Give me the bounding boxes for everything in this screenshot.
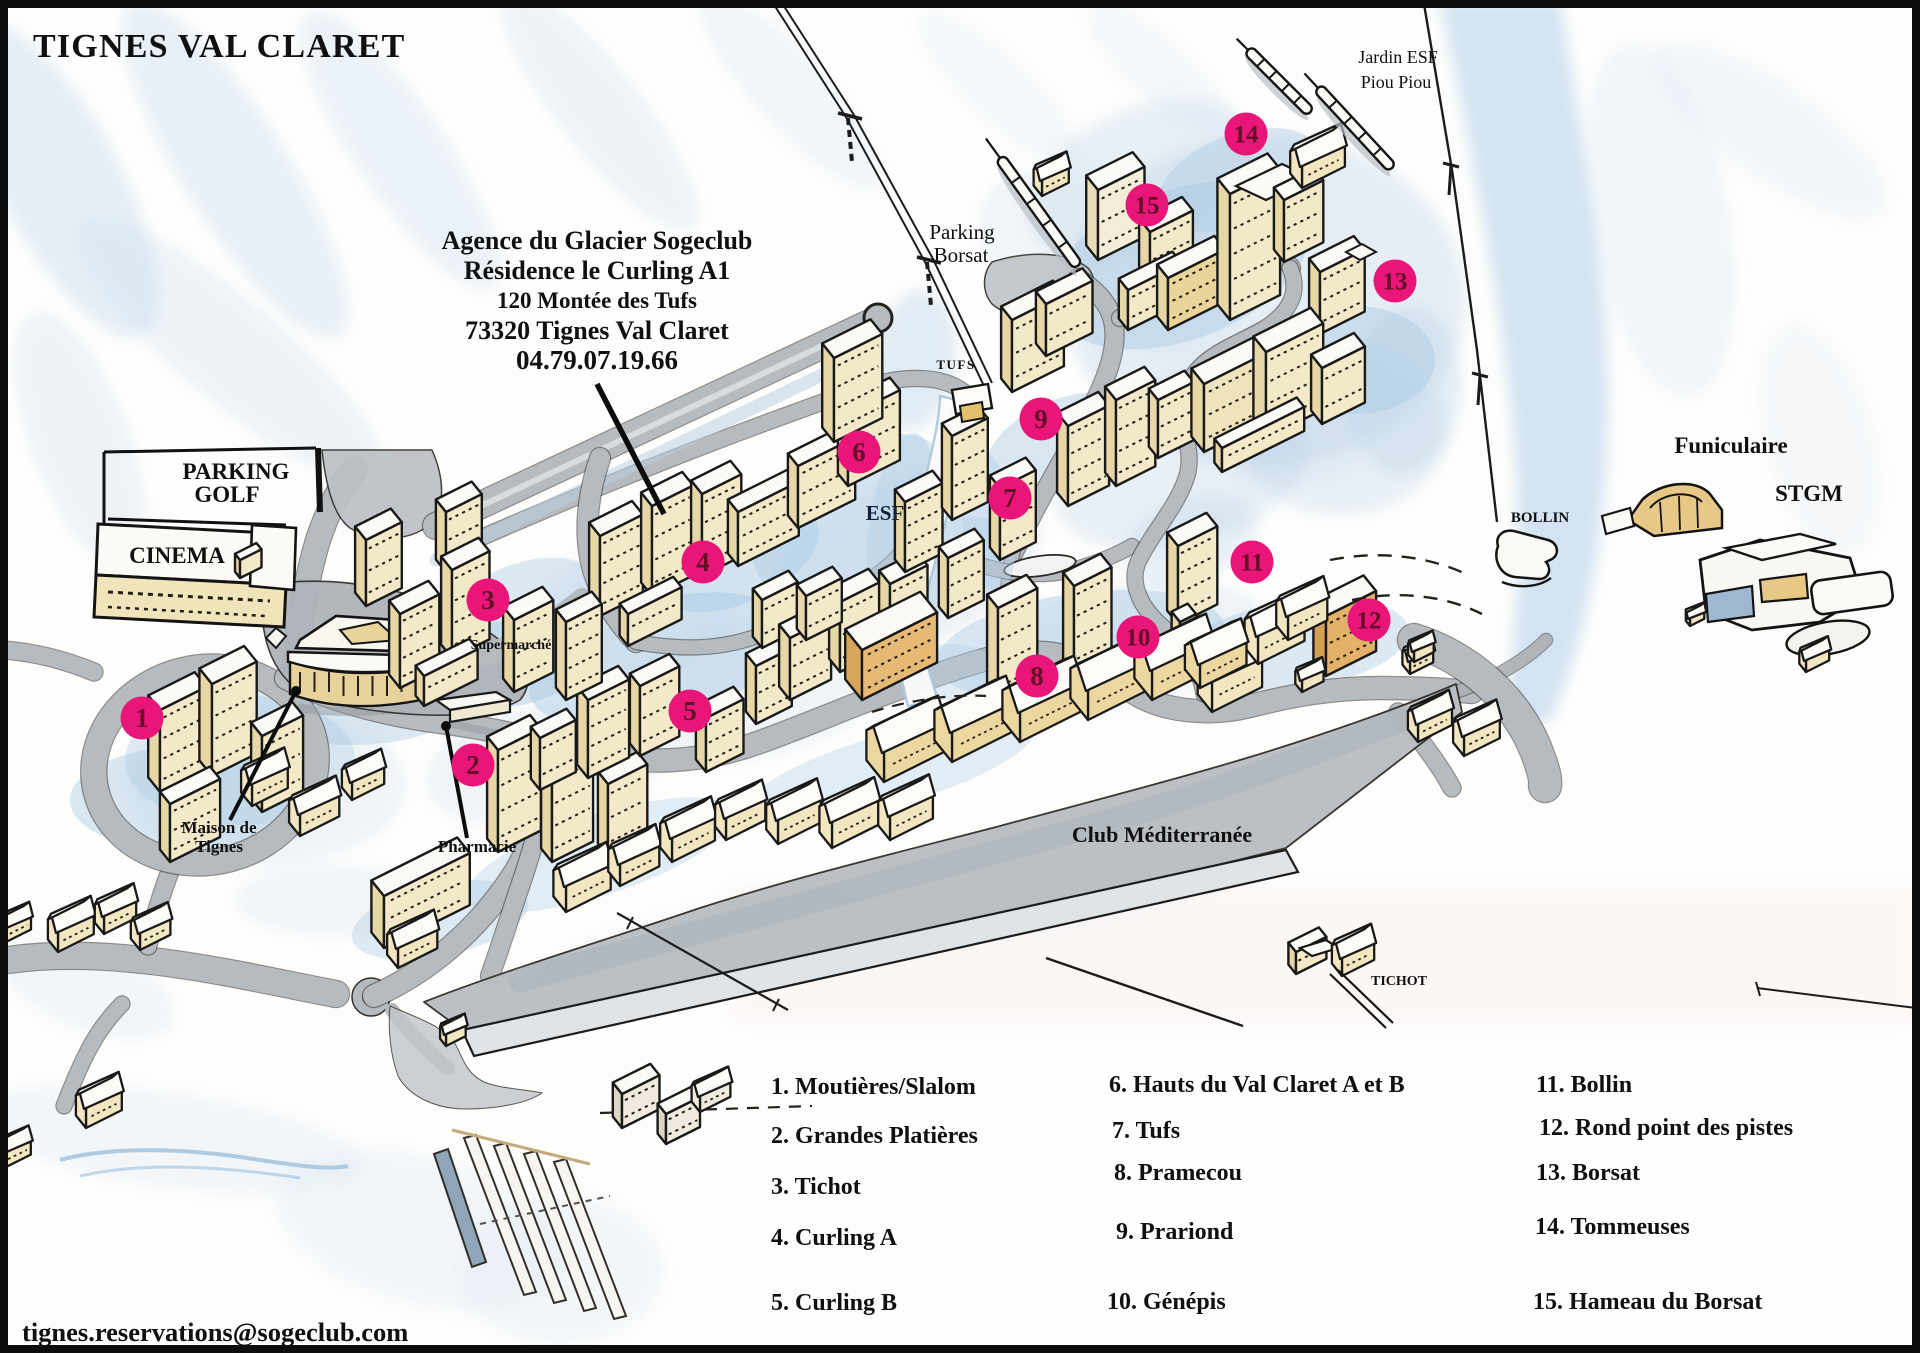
svg-text:Maison de: Maison de [181,818,257,837]
svg-text:CINEMA: CINEMA [129,543,225,568]
svg-text:13. Borsat: 13. Borsat [1536,1160,1640,1186]
svg-text:Parking: Parking [929,220,995,244]
svg-text:STGM: STGM [1775,481,1843,506]
svg-text:73320 Tignes Val Claret: 73320 Tignes Val Claret [465,316,729,345]
svg-text:Supermarché: Supermarché [471,638,552,653]
svg-text:Funiculaire: Funiculaire [1674,433,1787,458]
svg-text:7: 7 [1003,483,1017,513]
svg-text:1. Moutières/Slalom: 1. Moutières/Slalom [771,1074,976,1100]
svg-text:14: 14 [1234,122,1260,149]
svg-text:Club Méditerranée: Club Méditerranée [1072,822,1252,847]
svg-text:GOLF: GOLF [194,482,259,507]
svg-text:Jardin ESF: Jardin ESF [1358,47,1438,67]
svg-text:Tignes: Tignes [195,837,243,856]
svg-text:1: 1 [135,703,149,733]
svg-text:BOLLIN: BOLLIN [1511,510,1570,526]
svg-text:6. Hauts du Val Claret A et B: 6. Hauts du Val Claret A et B [1109,1072,1405,1098]
svg-text:9: 9 [1034,404,1048,434]
svg-text:tignes.reservations@sogeclub.c: tignes.reservations@sogeclub.com [22,1317,408,1347]
svg-text:14. Tommeuses: 14. Tommeuses [1535,1214,1690,1240]
svg-text:11: 11 [1240,550,1264,577]
svg-text:9. Prariond: 9. Prariond [1116,1219,1234,1245]
svg-text:8. Pramecou: 8. Pramecou [1114,1160,1242,1186]
svg-text:7. Tufs: 7. Tufs [1112,1118,1180,1144]
svg-text:PARKING: PARKING [183,459,290,484]
svg-text:04.79.07.19.66: 04.79.07.19.66 [516,345,678,375]
svg-text:10: 10 [1126,625,1151,652]
svg-text:TIGNES VAL CLARET: TIGNES VAL CLARET [33,28,406,65]
svg-text:13: 13 [1383,269,1408,296]
svg-text:15: 15 [1135,193,1160,220]
svg-text:8: 8 [1030,661,1044,691]
svg-text:10. Génépis: 10. Génépis [1107,1289,1226,1315]
svg-text:TICHOT: TICHOT [1371,974,1428,989]
svg-text:Agence du Glacier Sogeclub: Agence du Glacier Sogeclub [442,226,753,255]
svg-text:2. Grandes Platières: 2. Grandes Platières [771,1123,978,1149]
svg-text:120 Montée des Tufs: 120 Montée des Tufs [497,288,697,313]
svg-text:12. Rond point des pistes: 12. Rond point des pistes [1539,1115,1793,1141]
svg-text:3. Tichot: 3. Tichot [771,1174,861,1200]
svg-text:4. Curling A: 4. Curling A [771,1225,898,1251]
svg-text:Résidence le Curling A1: Résidence le Curling A1 [464,256,731,285]
svg-text:Borsat: Borsat [934,243,989,267]
svg-text:15. Hameau du Borsat: 15. Hameau du Borsat [1533,1289,1762,1315]
svg-text:Piou Piou: Piou Piou [1361,72,1432,92]
svg-text:ESF: ESF [866,501,905,525]
svg-text:11. Bollin: 11. Bollin [1536,1072,1632,1098]
svg-text:3: 3 [481,585,495,615]
svg-text:4: 4 [696,547,710,577]
svg-text:2: 2 [466,750,480,780]
svg-text:5: 5 [683,696,697,726]
svg-text:6: 6 [852,437,866,467]
svg-text:Pharmacie: Pharmacie [438,837,517,856]
svg-text:12: 12 [1357,608,1382,635]
svg-text:TUFS: TUFS [936,357,975,372]
svg-text:5. Curling B: 5. Curling B [771,1290,897,1316]
